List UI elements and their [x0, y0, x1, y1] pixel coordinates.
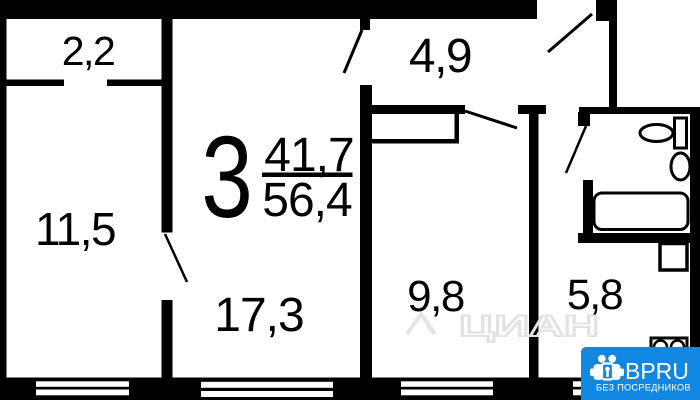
svg-text:3: 3 — [201, 113, 253, 242]
svg-text:BPRU: BPRU — [625, 358, 689, 384]
svg-text:56,4: 56,4 — [262, 174, 352, 227]
svg-text:9,8: 9,8 — [407, 272, 464, 321]
svg-text:2,2: 2,2 — [62, 28, 115, 74]
svg-text:11,5: 11,5 — [35, 203, 115, 255]
svg-text:5,8: 5,8 — [567, 271, 623, 319]
svg-text:БЕЗ ПОСРЕДНИКОВ: БЕЗ ПОСРЕДНИКОВ — [596, 383, 691, 393]
svg-text:4,9: 4,9 — [409, 30, 471, 83]
svg-text:17,3: 17,3 — [214, 289, 303, 342]
